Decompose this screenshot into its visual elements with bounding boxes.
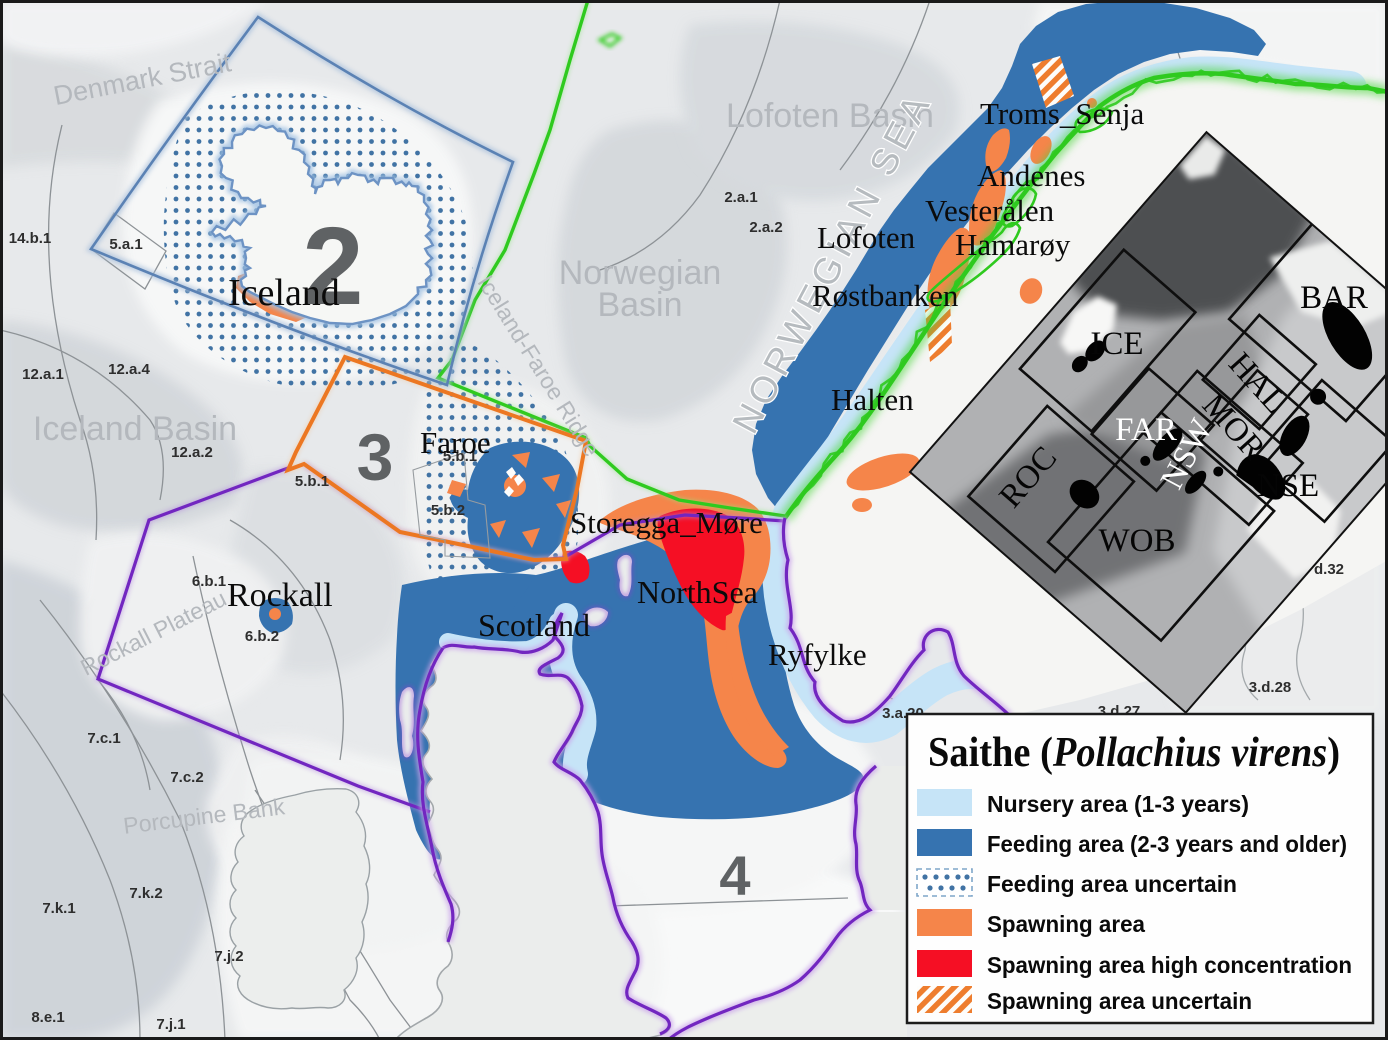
svg-text:Iceland Basin: Iceland Basin (33, 410, 237, 448)
svg-text:7.j.1: 7.j.1 (156, 1016, 185, 1033)
svg-text:Andenes: Andenes (977, 158, 1085, 193)
svg-text:Røstbanken: Røstbanken (812, 278, 959, 313)
svg-text:3: 3 (357, 420, 394, 494)
svg-text:Feeding area uncertain: Feeding area uncertain (987, 871, 1237, 897)
svg-text:5.b.2: 5.b.2 (431, 502, 465, 519)
svg-text:ICE: ICE (1090, 326, 1143, 362)
svg-text:Iceland: Iceland (228, 272, 340, 314)
svg-text:NorthSea: NorthSea (637, 574, 758, 610)
svg-text:Nursery area (1-3 years): Nursery area (1-3 years) (987, 791, 1249, 817)
svg-text:2.a.2: 2.a.2 (749, 219, 782, 236)
svg-text:NSE: NSE (1257, 468, 1319, 504)
svg-text:5.a.1: 5.a.1 (109, 236, 142, 253)
svg-text:Scotland: Scotland (478, 607, 590, 643)
svg-text:Troms_Senja: Troms_Senja (980, 96, 1144, 131)
svg-text:d.32: d.32 (1314, 561, 1344, 578)
svg-text:7.j.2: 7.j.2 (214, 948, 243, 965)
svg-text:3.d.28: 3.d.28 (1249, 679, 1292, 696)
svg-text:Vesterålen: Vesterålen (925, 193, 1055, 228)
svg-text:7.c.2: 7.c.2 (170, 769, 203, 786)
svg-text:4: 4 (719, 844, 750, 907)
svg-text:12.a.1: 12.a.1 (22, 366, 64, 383)
svg-text:Hamarøy: Hamarøy (955, 227, 1071, 262)
svg-text:Halten: Halten (831, 382, 914, 417)
svg-text:WOB: WOB (1099, 523, 1176, 559)
svg-text:Storegga_Møre: Storegga_Møre (570, 505, 763, 540)
svg-text:Faroe: Faroe (420, 425, 491, 460)
svg-text:6.b.2: 6.b.2 (245, 628, 279, 645)
svg-text:7.c.1: 7.c.1 (87, 730, 120, 747)
svg-text:Rockall: Rockall (227, 577, 333, 614)
svg-text:Lofoten: Lofoten (817, 220, 916, 255)
svg-text:Basin: Basin (597, 286, 682, 324)
svg-text:12.a.4: 12.a.4 (108, 361, 150, 378)
svg-text:Ryfylke: Ryfylke (768, 637, 867, 672)
svg-text:12.a.2: 12.a.2 (171, 444, 213, 461)
svg-text:Feeding area (2-3 years and ol: Feeding area (2-3 years and older) (987, 831, 1347, 857)
svg-text:6.b.1: 6.b.1 (192, 573, 226, 590)
svg-text:7.k.1: 7.k.1 (42, 900, 75, 917)
svg-text:Saithe (Pollachius virens): Saithe (Pollachius virens) (928, 730, 1340, 776)
svg-text:Spawning area high concentrati: Spawning area high concentration (987, 952, 1352, 978)
svg-text:Spawning area: Spawning area (987, 911, 1145, 937)
svg-text:2.a.1: 2.a.1 (724, 189, 757, 206)
svg-text:BAR: BAR (1300, 280, 1368, 316)
svg-text:5.b.1: 5.b.1 (295, 473, 329, 490)
svg-text:8.e.1: 8.e.1 (31, 1009, 64, 1026)
svg-text:Spawning area uncertain: Spawning area uncertain (987, 988, 1252, 1014)
svg-text:7.k.2: 7.k.2 (129, 885, 162, 902)
svg-text:FAR: FAR (1115, 412, 1177, 448)
svg-text:14.b.1: 14.b.1 (9, 230, 52, 247)
